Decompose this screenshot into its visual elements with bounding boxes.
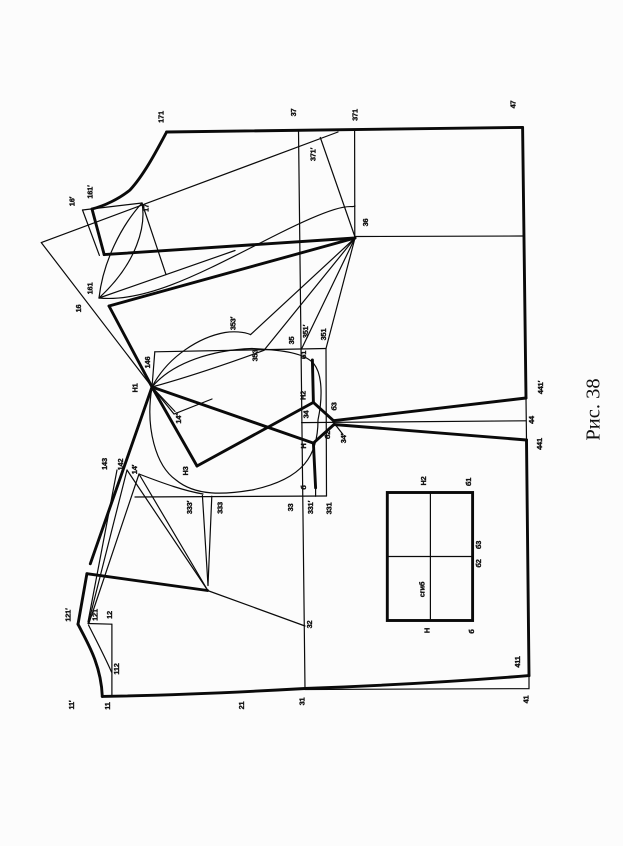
svg-text:353: 353 bbox=[251, 350, 260, 362]
svg-text:б1: б1 bbox=[299, 351, 308, 359]
svg-text:б: б bbox=[299, 485, 308, 490]
svg-text:17: 17 bbox=[142, 204, 151, 212]
svg-text:21: 21 bbox=[237, 702, 246, 710]
svg-text:371: 371 bbox=[351, 109, 360, 121]
svg-text:333: 333 bbox=[216, 502, 225, 514]
svg-text:161′: 161′ bbox=[86, 185, 95, 199]
svg-text:Н2: Н2 bbox=[299, 391, 308, 400]
svg-text:14″: 14″ bbox=[174, 412, 183, 424]
svg-text:Н: Н bbox=[423, 628, 432, 633]
svg-text:41: 41 bbox=[522, 696, 531, 704]
svg-text:11′: 11′ bbox=[67, 700, 76, 709]
svg-text:333′: 333′ bbox=[185, 500, 194, 514]
svg-text:Н3: Н3 bbox=[181, 466, 190, 475]
svg-text:331: 331 bbox=[325, 503, 334, 515]
svg-text:37: 37 bbox=[289, 109, 298, 117]
svg-text:441′: 441′ bbox=[536, 380, 545, 394]
svg-text:б3: б3 bbox=[474, 541, 483, 549]
svg-text:143: 143 bbox=[100, 458, 109, 470]
svg-text:34: 34 bbox=[302, 410, 311, 419]
svg-text:б: б bbox=[467, 629, 476, 634]
svg-text:16′: 16′ bbox=[68, 196, 77, 206]
svg-text:47: 47 bbox=[509, 101, 518, 109]
svg-text:сгиб: сгиб bbox=[418, 581, 427, 597]
svg-text:34′: 34′ bbox=[339, 433, 348, 443]
svg-text:Н2: Н2 bbox=[419, 476, 428, 485]
svg-text:33: 33 bbox=[286, 504, 295, 512]
svg-text:35: 35 bbox=[287, 337, 296, 345]
svg-text:32: 32 bbox=[305, 621, 314, 629]
svg-text:142: 142 bbox=[116, 459, 125, 471]
svg-text:б3: б3 bbox=[330, 402, 339, 410]
svg-text:351: 351 bbox=[319, 329, 328, 341]
svg-text:171: 171 bbox=[157, 111, 166, 123]
svg-text:411: 411 bbox=[513, 656, 522, 667]
svg-text:б2: б2 bbox=[323, 431, 332, 439]
svg-text:36: 36 bbox=[361, 219, 370, 227]
svg-text:121′: 121′ bbox=[64, 608, 73, 622]
svg-text:б1: б1 bbox=[464, 478, 473, 486]
svg-text:112: 112 bbox=[112, 663, 121, 674]
svg-text:351′: 351′ bbox=[301, 324, 310, 338]
svg-text:16: 16 bbox=[74, 305, 83, 313]
svg-text:12: 12 bbox=[105, 611, 114, 619]
svg-text:44: 44 bbox=[527, 415, 536, 424]
svg-text:371′: 371′ bbox=[309, 147, 318, 161]
svg-text:146: 146 bbox=[143, 357, 152, 369]
svg-text:331′: 331′ bbox=[306, 500, 315, 514]
svg-text:31: 31 bbox=[298, 698, 307, 706]
svg-text:441: 441 bbox=[535, 438, 544, 450]
svg-text:161: 161 bbox=[86, 283, 95, 295]
svg-text:353′: 353′ bbox=[229, 316, 238, 330]
svg-text:б2: б2 bbox=[474, 559, 483, 567]
svg-text:14′: 14′ bbox=[130, 464, 139, 474]
svg-text:Рис. 38: Рис. 38 bbox=[583, 378, 605, 440]
svg-text:Н: Н bbox=[299, 443, 308, 448]
svg-text:Н1: Н1 bbox=[131, 383, 140, 392]
svg-text:121: 121 bbox=[91, 609, 100, 621]
svg-text:11: 11 bbox=[103, 702, 112, 710]
